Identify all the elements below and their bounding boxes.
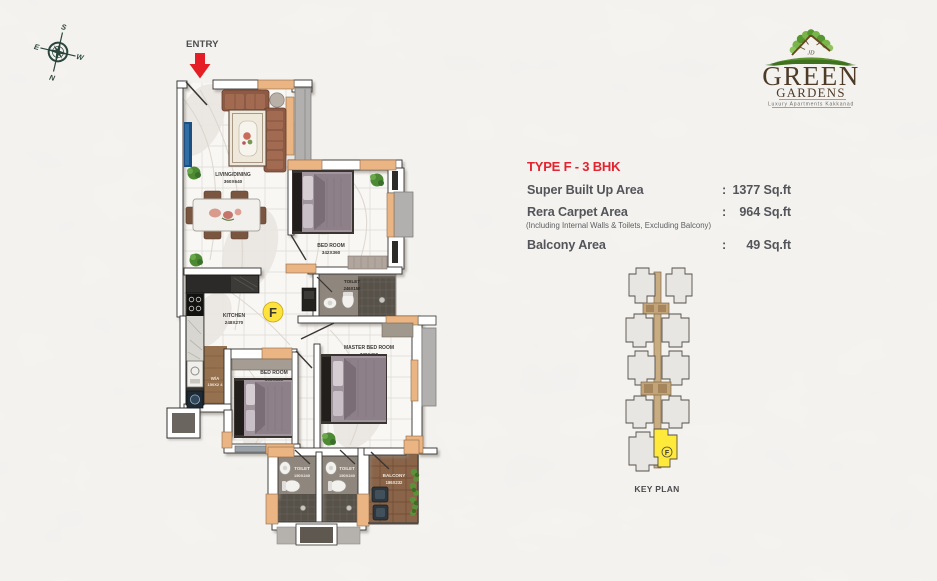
svg-text:964 Sq.ft: 964 Sq.ft (739, 205, 791, 219)
svg-text:Rera Carpet Area: Rera Carpet Area (527, 205, 629, 219)
svg-text:300X330: 300X330 (265, 377, 284, 382)
svg-text:150X240: 150X240 (339, 473, 356, 478)
svg-text:ENTRY: ENTRY (186, 39, 219, 50)
svg-text:BED ROOM: BED ROOM (260, 370, 288, 376)
svg-text:1377 Sq.ft: 1377 Sq.ft (733, 183, 792, 197)
svg-text:150X2 4: 150X2 4 (208, 382, 224, 387)
svg-text:Super Built Up Area: Super Built Up Area (527, 183, 645, 197)
svg-text:246X150: 246X150 (344, 286, 361, 291)
svg-text:W/A: W/A (211, 376, 220, 381)
svg-text:F: F (665, 450, 670, 457)
svg-text:JD: JD (808, 51, 816, 57)
svg-text:KEY PLAN: KEY PLAN (634, 484, 679, 494)
svg-text:150X240: 150X240 (294, 473, 311, 478)
svg-text:MASTER BED ROOM: MASTER BED ROOM (344, 345, 394, 351)
svg-text:GARDENS: GARDENS (776, 86, 846, 100)
svg-text::: : (722, 183, 726, 197)
svg-text:LIVING/DINING: LIVING/DINING (215, 172, 251, 178)
svg-text:TYPE F - 3 BHK: TYPE F - 3 BHK (527, 159, 621, 174)
svg-text:F: F (269, 305, 277, 320)
svg-text:(Including Internal Walls & To: (Including Internal Walls & Toilets, Exc… (526, 221, 711, 230)
svg-text:360X640: 360X640 (224, 179, 243, 184)
svg-text::: : (722, 205, 726, 219)
svg-text:330X450: 330X450 (360, 352, 379, 357)
svg-text::: : (722, 238, 726, 252)
svg-text:248X270: 248X270 (225, 320, 244, 325)
svg-text:TOILET: TOILET (344, 279, 360, 284)
svg-text:49 Sq.ft: 49 Sq.ft (746, 238, 792, 252)
svg-text:Luxury Apartments Kakkanad: Luxury Apartments Kakkanad (768, 101, 854, 107)
svg-text:186X232: 186X232 (386, 480, 403, 485)
svg-text:Balcony Area: Balcony Area (527, 238, 607, 252)
svg-text:342X360: 342X360 (322, 250, 341, 255)
svg-text:TOILET: TOILET (339, 466, 355, 471)
svg-text:KITCHEN: KITCHEN (223, 313, 246, 319)
svg-text:BED ROOM: BED ROOM (317, 243, 345, 249)
svg-text:BALCONY: BALCONY (383, 473, 406, 478)
svg-text:TOILET: TOILET (294, 466, 310, 471)
